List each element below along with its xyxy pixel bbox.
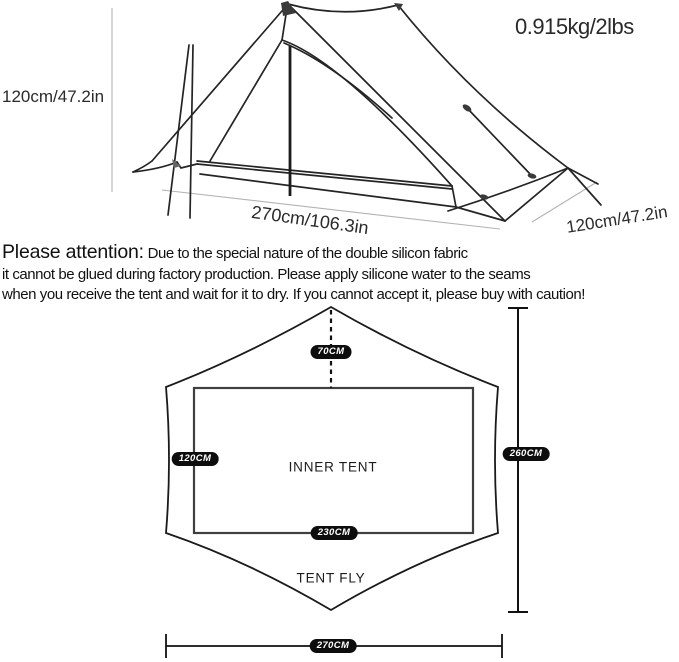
peak-offset-badge: 70CM [311,345,352,359]
front-left-edge [152,4,288,161]
attention-line-1: Please attention: Due to the special nat… [2,240,678,265]
floor-top-edge [197,161,452,186]
weight-label: 0.915kg/2lbs [515,14,634,40]
attention-note: Please attention: Due to the special nat… [2,240,678,305]
attention-line-2: it cannot be glued during factory produc… [2,265,678,285]
guy-line-left-1 [168,45,189,215]
left-hem [133,162,177,172]
door-edge [282,40,452,186]
attention-heading: Please attention: [2,241,144,263]
front-peak-marker [281,1,296,16]
tent-illustration-section: 0.915kg/2lbs 120cm/47.2in 270cm/106.3in … [0,0,679,238]
guy-line-right-1 [568,168,598,184]
product-diagram-page: { "tent_view": { "weight": "0.915kg/2lbs… [0,0,679,662]
stakes-and-markers [172,1,537,200]
guy-line-left-2 [190,45,193,218]
floor-right-corner [452,186,456,207]
inner-width-badge: 120CM [172,452,219,466]
fly-width-badge: 270CM [310,639,357,653]
right-fly-hem [505,168,568,221]
guy-line-panel [467,108,532,176]
inner-tent-label: INNER TENT [289,460,378,475]
dimension-lines [112,8,597,229]
floor-top-edge-2 [197,164,452,189]
attention-line-1-text: Due to the special nature of the double … [144,245,468,262]
tent-fly-label: TENT FLY [297,571,366,586]
ridge-line [288,4,398,12]
inner-length-badge: 230CM [311,526,358,540]
fly-length-badge: 260CM [503,447,550,461]
inner-left-edge [210,40,282,161]
right-ground-hem [448,168,568,211]
floor-plan-section: 70CM 120CM 260CM 230CM 270CM INNER TENT … [0,300,679,662]
guy-line-right-2 [568,168,601,205]
height-label: 120cm/47.2in [2,87,104,107]
left-flap [177,162,197,168]
